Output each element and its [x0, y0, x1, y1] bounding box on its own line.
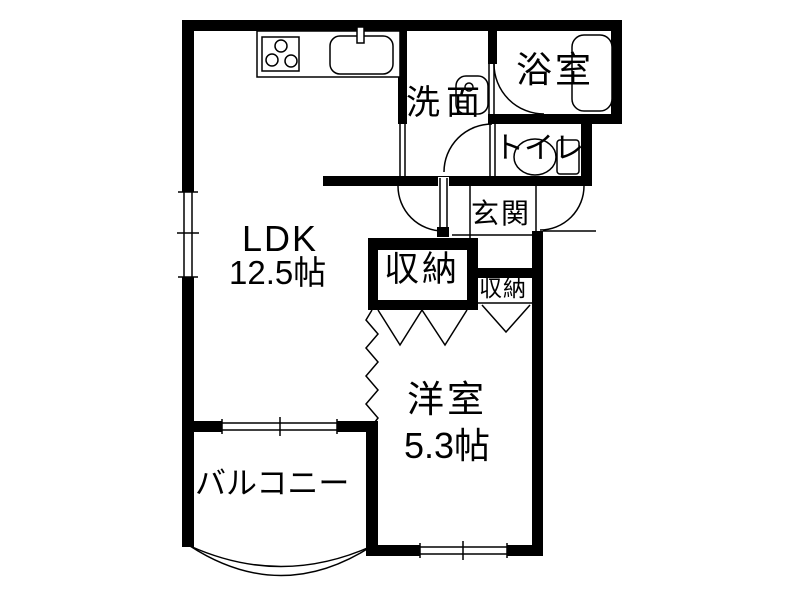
- western-room-size-label: 5.3帖: [404, 428, 490, 464]
- accordion-partition: [366, 310, 378, 426]
- ldk-size-label: 12.5帖: [229, 256, 326, 289]
- closet-small-label: 収納: [479, 277, 527, 300]
- bathroom-label: 浴室: [516, 52, 594, 88]
- closet-small-bifold: [482, 305, 530, 332]
- washroom-label: 洗面: [406, 86, 486, 120]
- ldk-label: LDK: [242, 221, 318, 257]
- toilet-label: トイレ: [494, 134, 584, 164]
- floor-plan: LDK 12.5帖 洗面 浴室 トイレ 玄関 収納 収納 洋室 5.3帖 バルコ…: [0, 0, 800, 600]
- washroom-door-arc: [444, 124, 492, 172]
- ldk-left-window: [177, 192, 199, 277]
- western-room-window: [420, 541, 507, 560]
- closet-large-bifold: [378, 310, 467, 345]
- faucet-icon: [357, 27, 364, 43]
- entrance-door-arc: [540, 186, 584, 230]
- western-room-label: 洋室: [407, 381, 487, 418]
- balcony-curve: [190, 546, 372, 576]
- stove-icon: [262, 37, 299, 71]
- closet-large-label: 収納: [384, 252, 460, 287]
- floor-plan-drawing: [0, 0, 800, 600]
- entrance-label: 玄関: [471, 200, 531, 228]
- balcony-window: [222, 417, 337, 436]
- balcony-label: バルコニー: [195, 468, 349, 499]
